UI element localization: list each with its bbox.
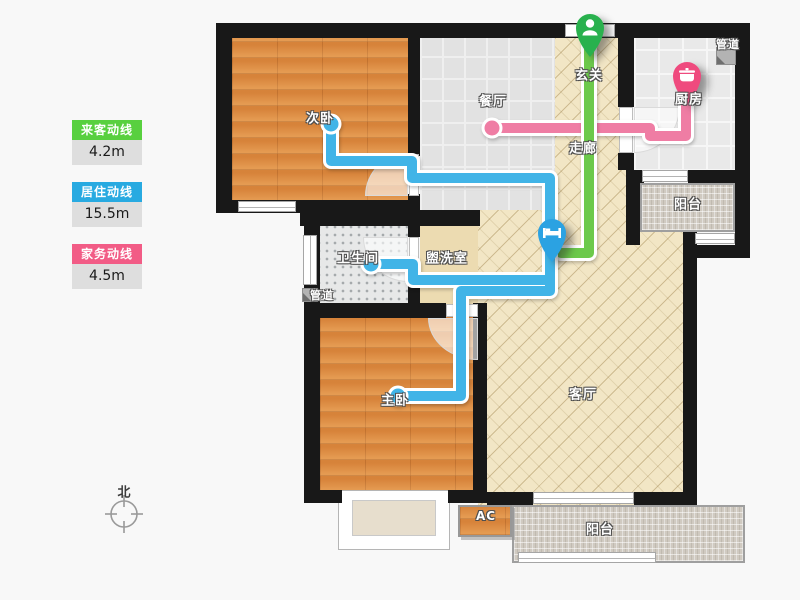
wall — [683, 245, 697, 505]
legend-living-label: 居住动线 — [72, 182, 142, 202]
pipe-left-label: 管道 — [310, 287, 334, 303]
ac-label: AC — [476, 509, 496, 523]
wall — [487, 492, 533, 505]
dining-label: 餐厅 — [479, 91, 507, 110]
wall — [688, 170, 735, 183]
floorplan-viewer: 来客动线 4.2m 居住动线 15.5m 家务动线 4.5m — [0, 0, 800, 600]
wall — [300, 210, 480, 226]
living-window — [533, 492, 634, 504]
flow-legend: 来客动线 4.2m 居住动线 15.5m 家务动线 4.5m — [72, 120, 142, 306]
wall — [216, 23, 750, 38]
wall — [448, 490, 487, 503]
legend-living-value: 15.5m — [72, 202, 142, 227]
living-label: 客厅 — [569, 384, 597, 403]
wall — [408, 226, 420, 237]
north-label: 北 — [117, 482, 130, 501]
washroom-label: 盥洗室 — [426, 248, 468, 267]
entry-label: 玄关 — [575, 65, 603, 84]
legend-housework-value: 4.5m — [72, 264, 142, 289]
balcony-railing — [518, 552, 656, 563]
legend-visitor: 来客动线 4.2m — [72, 120, 142, 165]
bedroom2-window — [238, 201, 296, 212]
kitchen-window — [642, 170, 688, 182]
balcony-top-window — [695, 233, 735, 244]
wall — [304, 490, 342, 503]
wall — [735, 23, 750, 258]
legend-housework-label: 家务动线 — [72, 244, 142, 264]
wall — [304, 303, 446, 318]
dining-floor — [420, 38, 555, 212]
bedroom2-label: 次卧 — [306, 108, 334, 127]
living-floor — [478, 210, 683, 505]
legend-housework: 家务动线 4.5m — [72, 244, 142, 289]
hallway-label: 走廊 — [569, 138, 597, 157]
wall — [216, 23, 232, 213]
wall — [618, 153, 634, 170]
pipe-top-label: 管道 — [716, 36, 740, 52]
wall — [618, 23, 634, 107]
kitchen-door — [619, 107, 633, 153]
kitchen-label: 厨房 — [675, 89, 703, 108]
legend-visitor-value: 4.2m — [72, 140, 142, 165]
bathroom-door — [409, 237, 419, 283]
bathroom-window — [303, 235, 317, 285]
legend-visitor-label: 来客动线 — [72, 120, 142, 140]
master-label: 主卧 — [381, 390, 409, 409]
master-door — [446, 304, 478, 317]
bedroom2-door — [409, 154, 419, 196]
wall — [408, 23, 420, 156]
bathroom-label: 卫生间 — [337, 248, 379, 267]
legend-living: 居住动线 15.5m — [72, 182, 142, 227]
balcony-bottom-label: 阳台 — [586, 519, 614, 538]
entrance-door — [565, 24, 615, 37]
balcony-top-label: 阳台 — [674, 194, 702, 213]
north-compass-icon — [105, 495, 143, 533]
bay-window-sill — [352, 500, 436, 536]
